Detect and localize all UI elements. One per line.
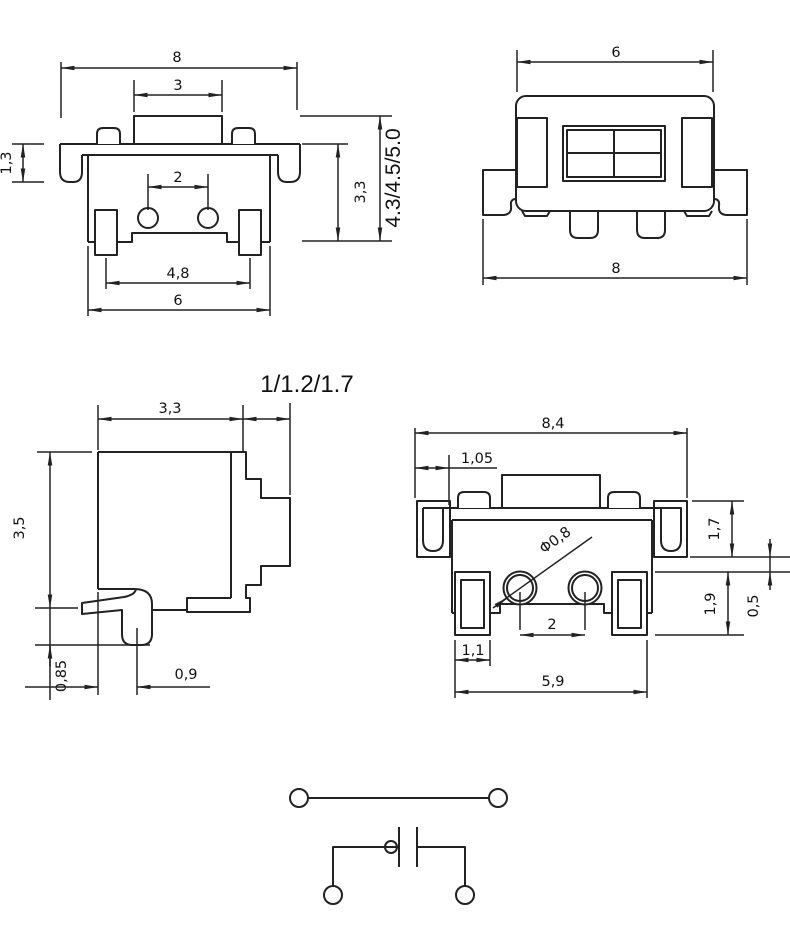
front-right-contact-hole [198, 208, 218, 228]
dim-rear-overall-width: 8 [611, 261, 620, 277]
rear-left-leg [570, 211, 598, 238]
front-view: 8 3 1,3 2 3,3 4.3/4.5/5.0 4,8 6 [0, 50, 405, 316]
dim-bottom-hole-diameter: Φ0,8 [537, 524, 574, 557]
dim-bottom-pad-depth: 1,9 [703, 592, 719, 615]
front-button [134, 116, 222, 144]
dim-bottom-pad-span: 5,9 [541, 674, 564, 690]
dim-front-base-width: 6 [173, 293, 182, 309]
bottom-left-bracket-slot [423, 508, 443, 551]
rear-view: 6 8 [483, 45, 747, 285]
rear-right-insert [682, 118, 712, 187]
front-right-hook [278, 144, 300, 182]
bottom-right-bump [608, 492, 640, 508]
bottom-right-bracket-slot [661, 508, 681, 551]
tactile-switch-drawing: 8 3 1,3 2 3,3 4.3/4.5/5.0 4,8 6 [0, 0, 790, 950]
front-left-contact-hole [138, 208, 158, 228]
bottom-left-bump [458, 492, 490, 508]
dim-bottom-pad-width: 1,1 [461, 643, 484, 659]
front-right-bump [232, 128, 255, 144]
schematic-terminal-2 [489, 789, 507, 807]
circuit-schematic [290, 789, 507, 904]
dim-side-body-height: 3,5 [12, 516, 28, 539]
dim-bottom-bracket-depth: 1,7 [707, 517, 723, 540]
side-foot-and-lead [82, 589, 152, 645]
rear-window-cross [567, 130, 661, 177]
dim-bottom-step-height: 0,5 [746, 594, 762, 617]
dim-front-contact-spacing: 2 [173, 170, 182, 186]
dim-front-terminal-pitch: 4,8 [166, 266, 189, 282]
dim-side-foot-offset: 0,9 [174, 667, 197, 683]
rear-right-leg [637, 211, 665, 238]
schematic-terminal-3 [324, 886, 342, 904]
front-left-bump [97, 128, 120, 144]
dim-front-total-height-variants: 4.3/4.5/5.0 [382, 128, 405, 227]
dim-bottom-overall-width: 8,4 [541, 416, 564, 432]
front-right-terminal [239, 210, 261, 255]
rear-right-tab [714, 170, 747, 215]
dim-front-flange-height: 1,3 [0, 151, 15, 174]
dim-side-stem-variants: 1/1.2/1.7 [260, 371, 353, 398]
dim-front-body-height: 3,3 [353, 180, 369, 203]
front-left-hook [60, 144, 82, 182]
front-left-terminal [95, 210, 117, 255]
dim-front-overall-width: 8 [172, 50, 181, 66]
side-view: 1/1.2/1.7 3,3 3,5 0,85 0,9 [12, 371, 354, 700]
rear-left-insert [517, 118, 547, 187]
schematic-right-wire [417, 847, 465, 886]
technical-drawing-page: 8 3 1,3 2 3,3 4.3/4.5/5.0 4,8 6 [0, 0, 790, 950]
rear-left-tab [483, 170, 516, 215]
bottom-left-bracket [417, 501, 450, 557]
schematic-terminal-4 [456, 886, 474, 904]
dim-bottom-hole-spacing: 2 [547, 617, 556, 633]
schematic-terminal-1 [290, 789, 308, 807]
bottom-right-bracket [654, 501, 687, 557]
bottom-button [502, 475, 600, 508]
bottom-view: Φ0,8 8,4 1,05 2 1,1 5,9 1,7 0,5 1,9 [415, 416, 790, 698]
dim-bottom-edge-to-pad: 1,05 [461, 451, 493, 467]
dim-front-button-width: 3 [173, 78, 182, 94]
dim-side-body-depth: 3,3 [158, 401, 181, 417]
dim-rear-body-width: 6 [611, 45, 620, 61]
